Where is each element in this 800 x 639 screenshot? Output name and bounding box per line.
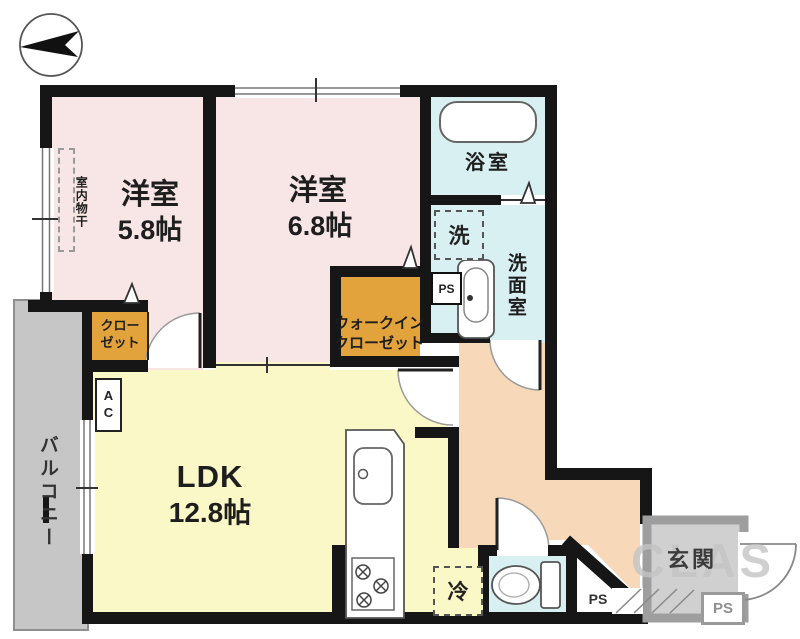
bathroom-label: 浴室	[445, 152, 531, 174]
indoor-drying-symbol	[58, 148, 75, 252]
ldk-size: 12.8帖	[115, 498, 305, 529]
washer-label: 洗	[449, 220, 470, 250]
bedroom1-size: 5.8帖	[90, 216, 210, 246]
kitchen-counter	[346, 430, 404, 618]
compass-icon	[20, 14, 82, 76]
balcony-label: バルコニー	[36, 400, 57, 585]
ac-label: AC	[101, 388, 116, 422]
ps-entrance-label: PS	[713, 600, 733, 617]
floorplan-canvas: CLAS 洋室 5.8帖 洋室 6.8帖 LDK 12.8帖 浴室 洗面室 洗 …	[0, 0, 800, 639]
bedroom2-name: 洋室	[258, 176, 378, 208]
entrance-label: 玄関	[652, 548, 732, 572]
closet-line2: ゼット	[94, 335, 146, 352]
bedroom2-size: 6.8帖	[255, 212, 385, 242]
closet-line1: クロー	[94, 318, 146, 335]
ps-washroom: PS	[431, 272, 462, 305]
refrigerator-label: 冷	[448, 576, 469, 606]
wic-line2: クローゼット	[334, 334, 424, 354]
vanity-sink	[458, 260, 494, 338]
ldk-name: LDK	[120, 460, 300, 494]
ps-entrance-box: PS	[701, 592, 745, 625]
refrigerator-space: 冷	[433, 566, 483, 616]
ps-toilet-label: PS	[582, 592, 614, 607]
bathtub	[440, 102, 536, 142]
toilet	[492, 562, 560, 608]
walk-in-closet-label: ウォークイン クローゼット	[334, 314, 424, 353]
indoor-drying-label: 室内物干	[74, 150, 87, 254]
wic-line1: ウォークイン	[334, 314, 424, 334]
ps-washroom-label: PS	[438, 282, 454, 296]
ac-box: AC	[95, 378, 122, 432]
washroom-label: 洗面室	[504, 228, 525, 344]
bedroom1-name: 洋室	[90, 180, 210, 212]
closet-label: クロー ゼット	[94, 318, 146, 352]
washer-space: 洗	[434, 210, 484, 260]
